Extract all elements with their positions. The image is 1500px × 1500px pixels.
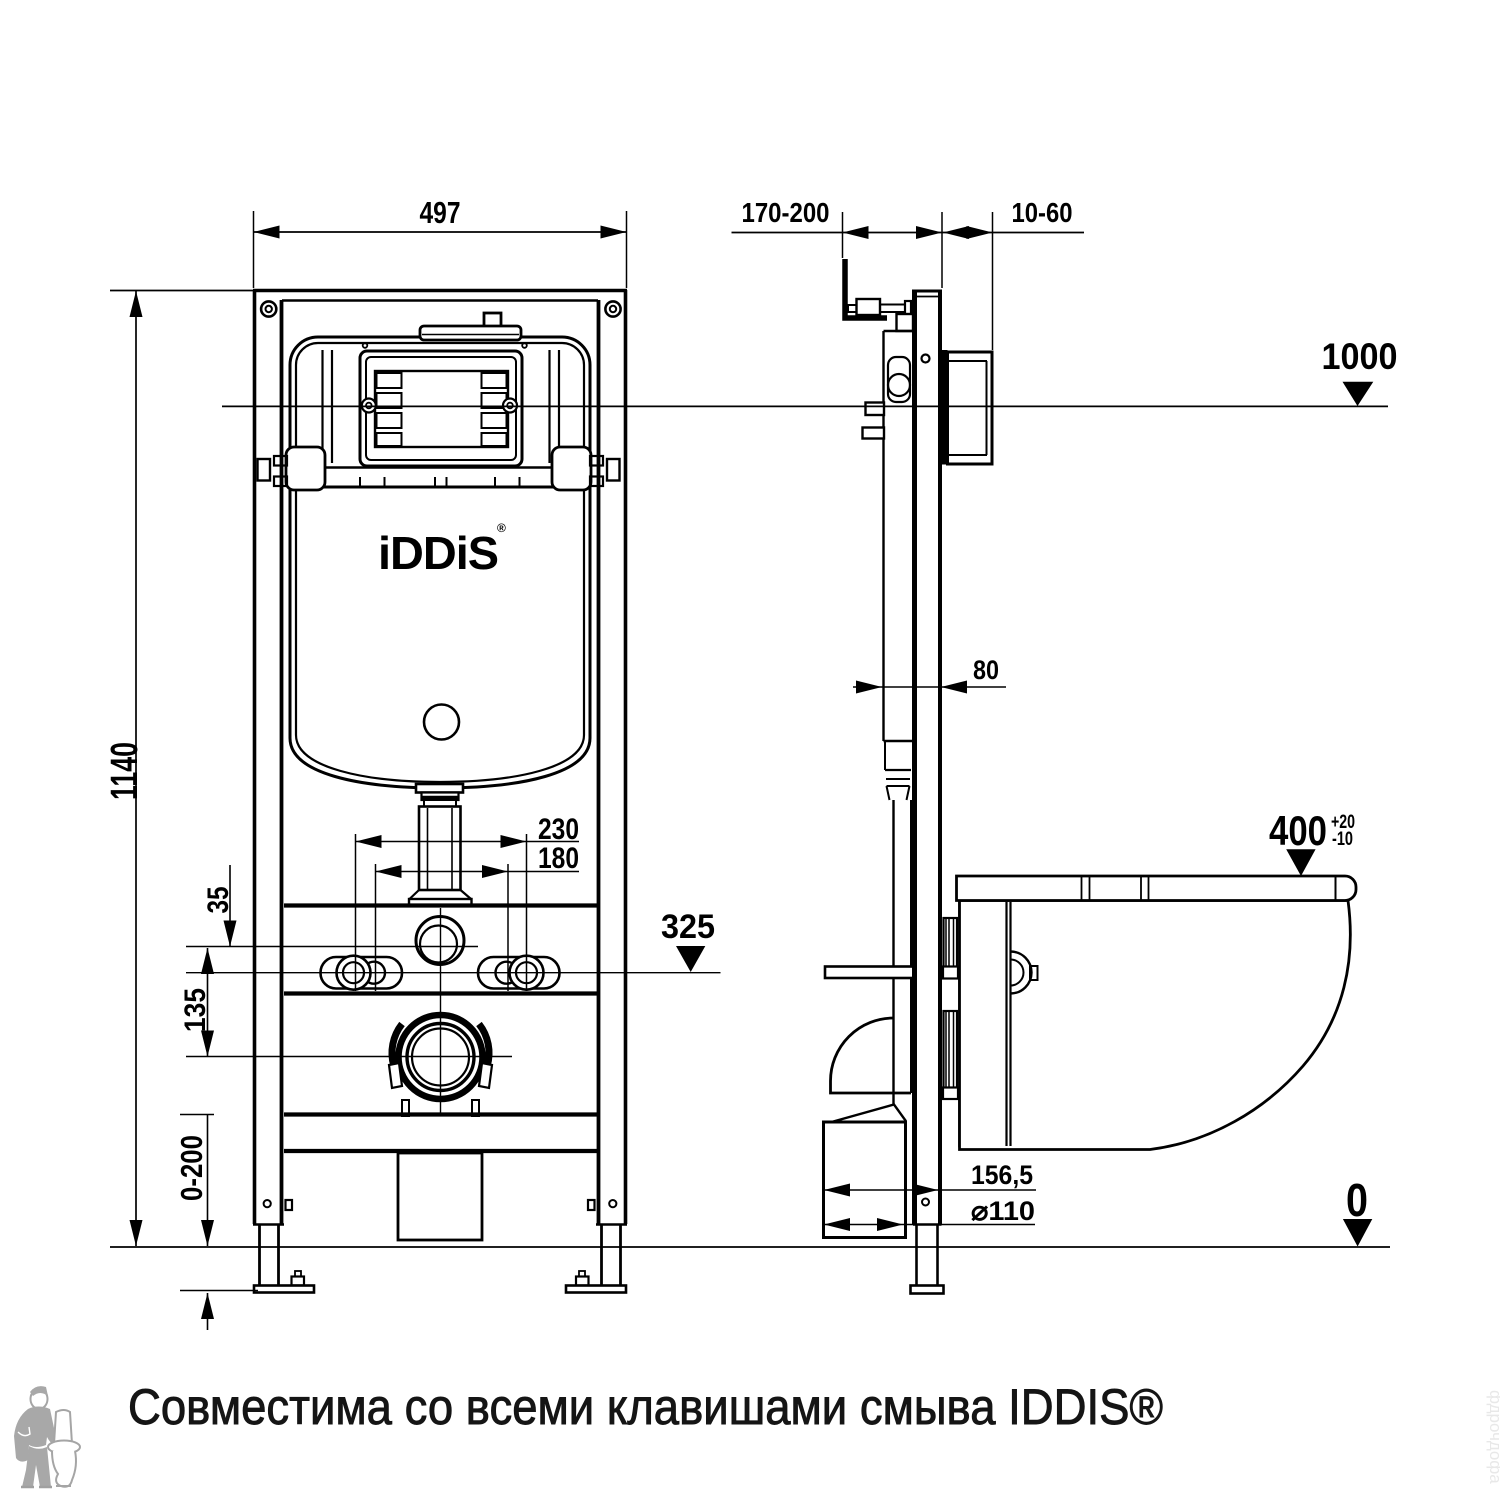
- svg-text:1140: 1140: [104, 742, 146, 800]
- svg-text:35: 35: [202, 887, 235, 914]
- svg-text:0-200: 0-200: [174, 1135, 209, 1201]
- svg-text:80: 80: [973, 655, 999, 685]
- svg-text:400: 400: [1269, 807, 1327, 854]
- svg-text:10-60: 10-60: [1012, 197, 1073, 228]
- svg-text:iDDiS: iDDiS: [378, 527, 498, 579]
- svg-text:170-200: 170-200: [742, 197, 830, 228]
- svg-text:156,5: 156,5: [971, 1160, 1033, 1190]
- svg-text:®: ®: [497, 521, 506, 535]
- svg-text:0: 0: [1346, 1174, 1368, 1226]
- svg-text:⌀110: ⌀110: [971, 1196, 1035, 1226]
- svg-text:фдрочдофа: фдрочдофа: [1486, 1390, 1500, 1484]
- svg-text:-10: -10: [1332, 829, 1353, 850]
- svg-text:1000: 1000: [1322, 336, 1398, 377]
- svg-text:325: 325: [661, 908, 715, 946]
- svg-text:497: 497: [420, 195, 461, 230]
- svg-text:Совместима со всеми клавишами: Совместима со всеми клавишами смыва IDDI…: [128, 1379, 1163, 1435]
- svg-text:180: 180: [538, 842, 579, 875]
- svg-text:135: 135: [179, 988, 212, 1032]
